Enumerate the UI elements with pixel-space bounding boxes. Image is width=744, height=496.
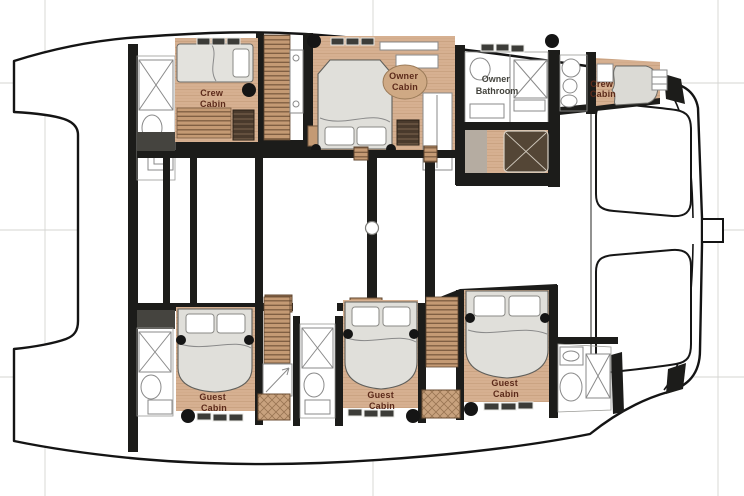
stairs-mid-2 — [426, 297, 458, 367]
crew-port-steps — [177, 108, 231, 138]
deck-hatch-3 — [354, 147, 368, 160]
wall-bath3-top — [556, 337, 618, 344]
label-owner-cabin: Owner Cabin — [389, 71, 421, 92]
pillow — [233, 49, 249, 77]
pillow — [186, 314, 214, 333]
owner-bath-counter-2 — [514, 100, 545, 111]
label-line: Owner — [482, 74, 511, 84]
label-crew-cabin-starboard: Crew Cabin — [590, 79, 616, 99]
crewstbd-basin — [561, 95, 577, 107]
wall-bath3-fwd — [611, 352, 624, 414]
guest-cabin-2: Guest Cabin — [343, 300, 420, 423]
dressing-divider-wall — [455, 122, 560, 130]
wall-ownerbath-fwd — [548, 50, 560, 187]
dressing-fwd-wall — [456, 173, 560, 186]
owner-dresser — [397, 120, 419, 145]
stairs-mid-1 — [264, 297, 290, 363]
bridge-wall-3 — [255, 150, 263, 310]
bed-corner-dot — [244, 335, 254, 345]
sink-g2 — [305, 400, 330, 414]
bed-corner-dot — [343, 329, 353, 339]
guest1-bed — [176, 309, 254, 392]
crew-cabin-port: Crew Cabin — [175, 38, 258, 142]
toilet-g1 — [141, 375, 161, 399]
wall-guest3-fwd — [549, 285, 558, 418]
lockers-1 — [258, 394, 290, 420]
label-line: Guest — [367, 390, 394, 400]
label-line: Cabin — [493, 389, 519, 399]
mast-step — [366, 222, 379, 235]
trampoline-frame-top — [596, 103, 691, 216]
bridge-wall-2 — [190, 152, 197, 308]
label-guest-cabin-1: Guest Cabin — [199, 392, 228, 413]
bridge-top-band — [137, 150, 455, 158]
pillow — [509, 296, 540, 316]
toilet-g2 — [304, 373, 324, 397]
wall-bath2-fwd — [335, 316, 343, 426]
pillow — [217, 314, 245, 333]
bed-corner-dot — [465, 313, 475, 323]
wall-owner-fwd — [455, 45, 465, 185]
pillow — [352, 307, 379, 326]
bridge-wall-4 — [425, 150, 435, 310]
crew-port-drawers — [233, 110, 254, 140]
label-line: Cabin — [392, 82, 418, 92]
label-line: Guest — [199, 392, 226, 402]
catamaran-floor-plan: Crew Cabin — [0, 0, 744, 496]
pillow — [474, 296, 505, 316]
stair-rail-panel — [290, 50, 303, 113]
pillow — [383, 307, 410, 326]
crew-port-bed — [177, 44, 253, 82]
bow-hatch — [652, 70, 667, 90]
guest-cabin-3: Guest Cabin — [464, 290, 550, 416]
bulkhead-forward — [128, 44, 138, 452]
owner-bed — [311, 60, 396, 154]
guest1-stool — [181, 409, 195, 423]
sink-g1 — [148, 400, 172, 414]
porthole-dot — [545, 34, 559, 48]
guest3-stool — [464, 402, 478, 416]
label-line: Guest — [491, 378, 518, 388]
label-line: Crew — [200, 88, 224, 98]
toilet-g3 — [560, 373, 582, 401]
label-line: Crew — [590, 79, 614, 89]
crewstbd-bed — [612, 66, 658, 105]
companionway-mid-starboard — [422, 297, 460, 418]
pillow — [357, 127, 386, 145]
owner-bath-counter-1 — [470, 104, 504, 118]
bed-corner-dot — [176, 335, 186, 345]
guest2-bed — [343, 302, 419, 389]
pillow — [325, 127, 354, 145]
porthole-dot — [307, 34, 321, 48]
stairs-port — [264, 35, 290, 140]
label-guest-cabin-3: Guest Cabin — [491, 378, 520, 399]
corner-block-bottom — [137, 310, 175, 329]
wall-bath2-aft — [293, 316, 300, 426]
label-line: Owner — [389, 71, 418, 81]
label-line: Bathroom — [476, 86, 519, 96]
long-deck-hatch — [380, 42, 438, 50]
guest3-bed — [465, 291, 550, 378]
dressing-carpet — [465, 130, 487, 174]
crewstbd-sink — [563, 79, 577, 93]
guest-cabin-1: Guest Cabin — [176, 307, 255, 423]
crew-port-stool — [242, 83, 256, 97]
bed-corner-dot — [409, 329, 419, 339]
lockers-2 — [422, 390, 460, 418]
bed-corner-dot — [540, 313, 550, 323]
floor-plan-stage: Crew Cabin — [0, 0, 744, 496]
bowsprit — [702, 219, 723, 242]
label-guest-cabin-2: Guest Cabin — [367, 390, 396, 411]
corner-block-top — [137, 132, 175, 151]
deck-hatch-4 — [424, 146, 437, 162]
label-line: Cabin — [200, 99, 226, 109]
guest2-stool — [406, 409, 420, 423]
label-line: Cabin — [201, 403, 227, 413]
owner-dressing-room — [455, 122, 560, 186]
bridge-wall-1 — [163, 152, 170, 308]
label-line: Cabin — [590, 89, 616, 99]
label-crew-cabin-port: Crew Cabin — [200, 88, 226, 109]
crewstbd-toilet — [562, 59, 580, 77]
